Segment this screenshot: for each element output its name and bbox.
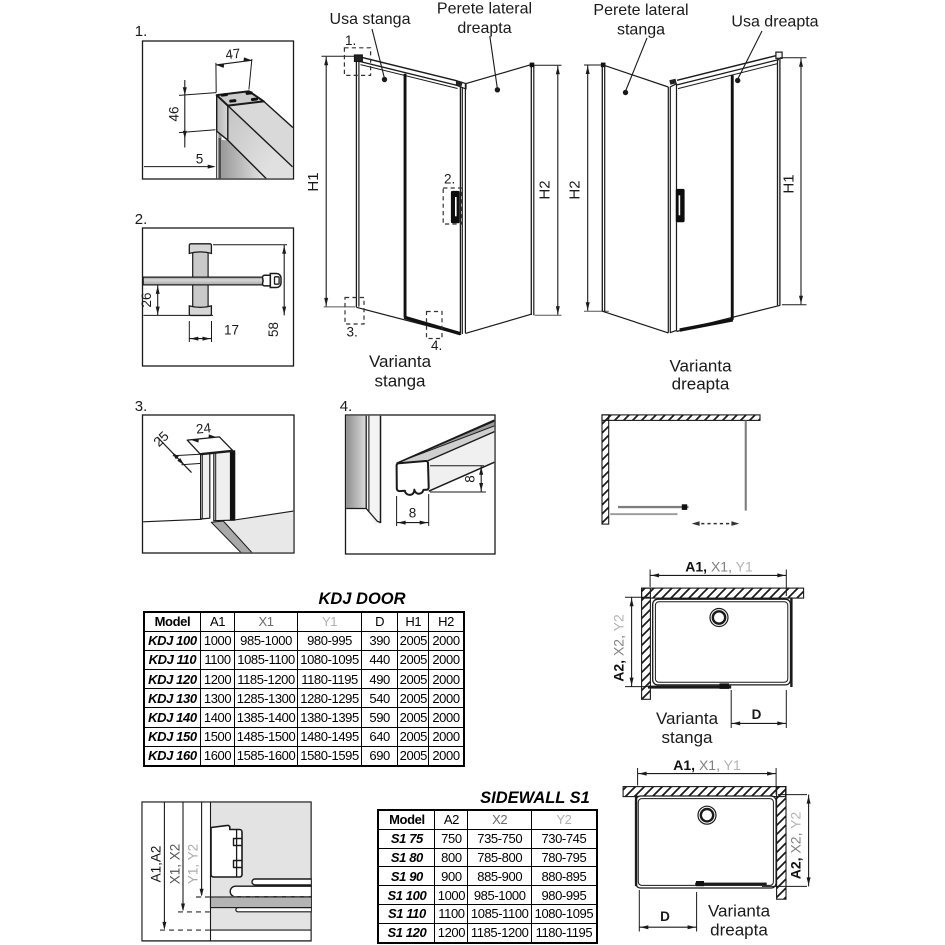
svg-text:1.: 1.	[345, 33, 356, 48]
svg-text:Varianta: Varianta	[669, 357, 732, 376]
svg-text:Varianta: Varianta	[656, 709, 719, 728]
svg-text:H2: H2	[537, 180, 554, 199]
svg-text:5: 5	[196, 152, 204, 167]
svg-text:Varianta: Varianta	[369, 352, 432, 371]
svg-text:H2: H2	[567, 180, 584, 199]
svg-text:Perete lateral: Perete lateral	[437, 1, 532, 18]
svg-text:A2, X2, Y2: A2, X2, Y2	[788, 812, 804, 880]
svg-text:2.: 2.	[444, 172, 455, 187]
svg-text:8: 8	[409, 506, 417, 521]
svg-text:2.: 2.	[135, 211, 148, 228]
svg-text:X1, X2: X1, X2	[167, 844, 182, 885]
svg-text:Varianta: Varianta	[708, 902, 771, 921]
svg-text:dreapta: dreapta	[672, 375, 730, 394]
svg-text:46: 46	[167, 106, 182, 121]
svg-text:47: 47	[225, 46, 242, 63]
svg-text:17: 17	[224, 323, 239, 338]
svg-text:A1,A2: A1,A2	[149, 846, 164, 883]
svg-text:Usa dreapta: Usa dreapta	[731, 14, 818, 31]
svg-text:1.: 1.	[135, 23, 148, 40]
svg-text:stanga: stanga	[661, 728, 713, 747]
svg-text:58: 58	[266, 322, 281, 337]
svg-text:A1, X1, Y1: A1, X1, Y1	[685, 559, 753, 575]
svg-text:D: D	[660, 909, 670, 924]
svg-text:4.: 4.	[431, 338, 442, 353]
svg-text:stanga: stanga	[374, 372, 426, 391]
svg-text:Perete lateral: Perete lateral	[593, 2, 688, 19]
svg-text:3.: 3.	[135, 398, 148, 415]
svg-text:8: 8	[463, 475, 478, 483]
svg-text:H1: H1	[781, 174, 798, 193]
svg-text:26: 26	[139, 292, 154, 307]
svg-text:stanga: stanga	[617, 21, 665, 38]
svg-text:dreapta: dreapta	[710, 921, 768, 940]
svg-text:Usa stanga: Usa stanga	[330, 11, 411, 28]
svg-text:Y1, Y2: Y1, Y2	[186, 844, 201, 884]
svg-text:3.: 3.	[347, 325, 358, 340]
svg-text:A1, X1, Y1: A1, X1, Y1	[673, 757, 741, 773]
svg-text:dreapta: dreapta	[457, 20, 511, 37]
svg-text:A2, X2, Y2: A2, X2, Y2	[611, 614, 627, 682]
svg-text:H1: H1	[305, 172, 322, 191]
svg-text:4.: 4.	[340, 398, 353, 415]
svg-text:24: 24	[195, 420, 212, 437]
svg-text:D: D	[752, 707, 762, 722]
